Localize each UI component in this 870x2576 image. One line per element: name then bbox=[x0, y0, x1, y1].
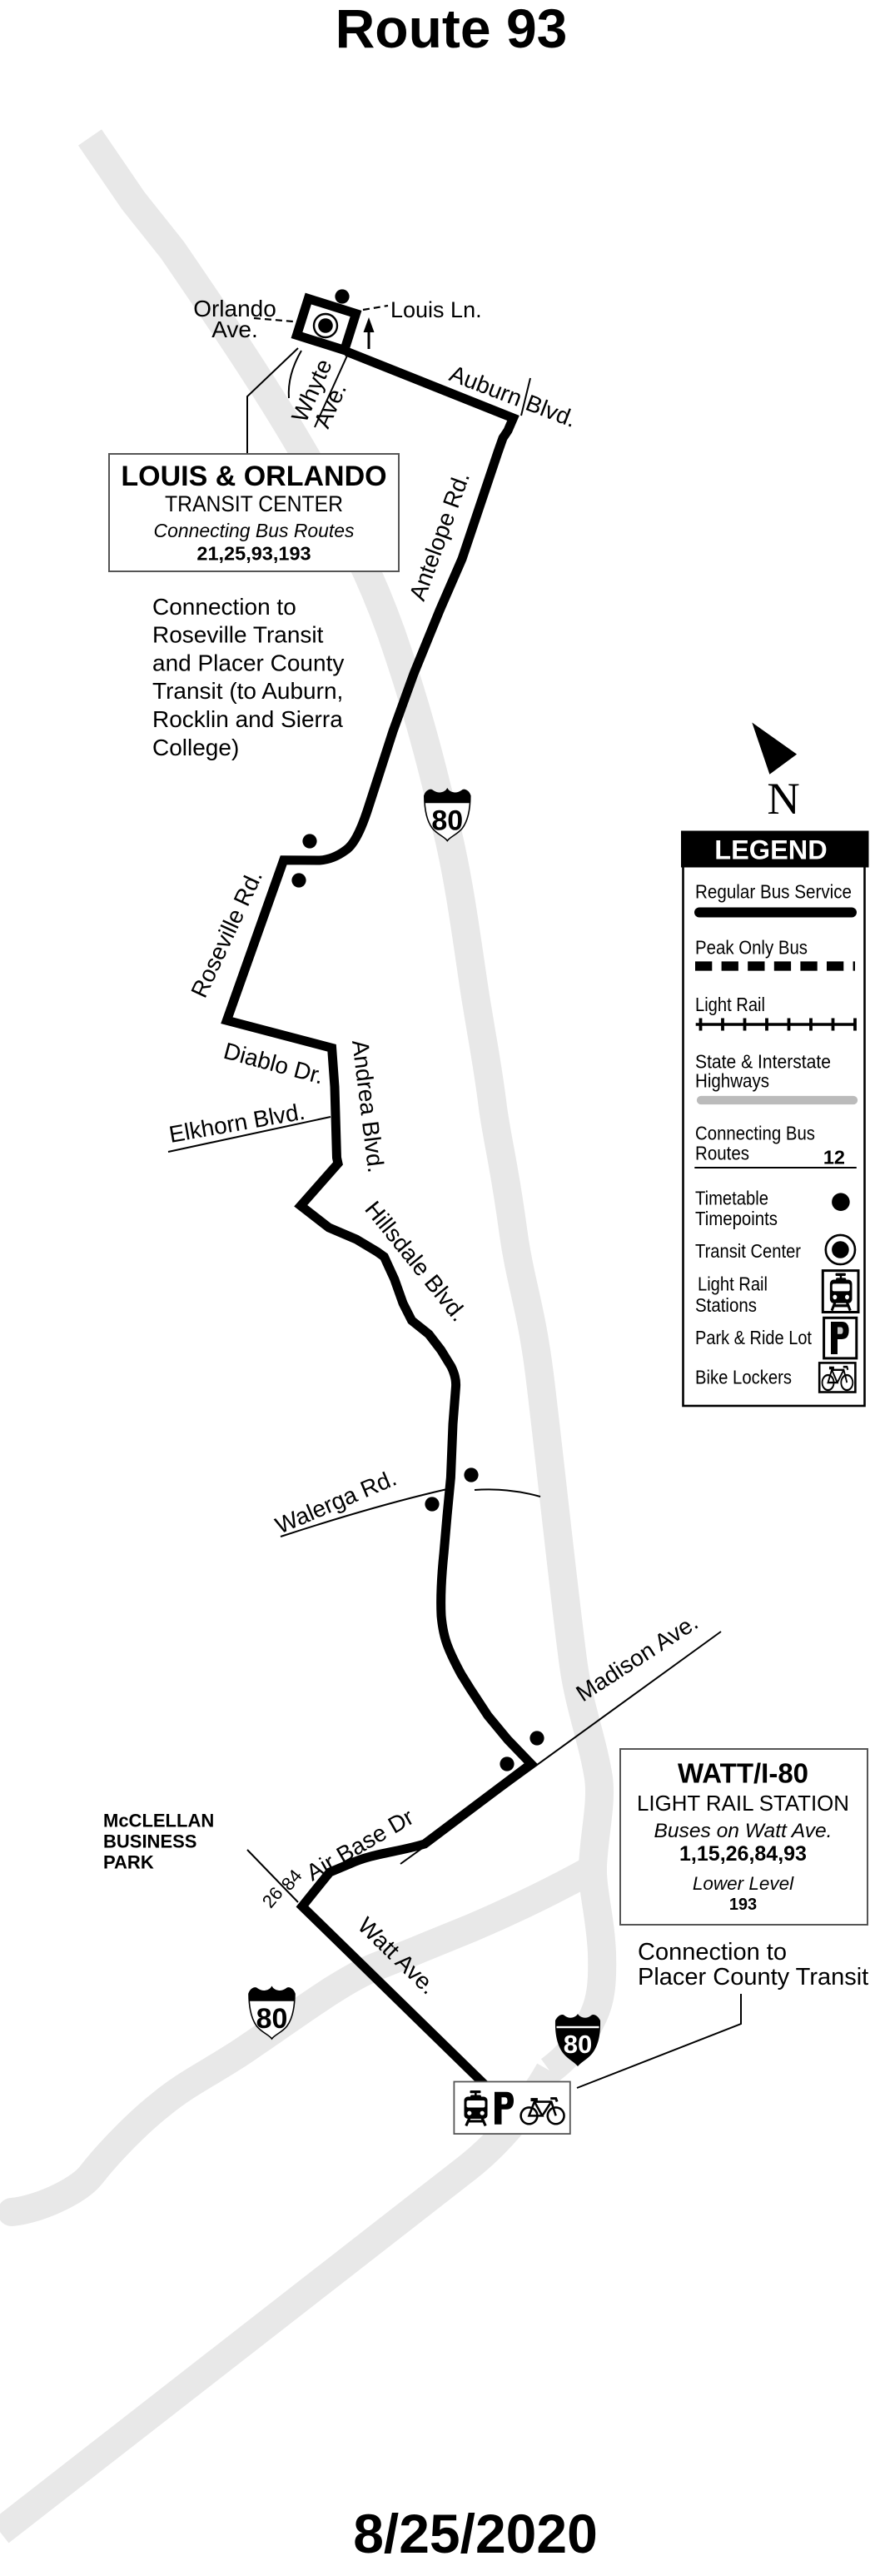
svg-text:Timepoints: Timepoints bbox=[695, 1208, 778, 1229]
svg-text:Connection to: Connection to bbox=[152, 594, 296, 620]
svg-text:WATT/I-80: WATT/I-80 bbox=[678, 1758, 808, 1789]
svg-text:193: 193 bbox=[729, 1896, 757, 1914]
svg-text:1,15,26,84,93: 1,15,26,84,93 bbox=[679, 1842, 807, 1866]
svg-text:Stations: Stations bbox=[695, 1294, 757, 1316]
svg-text:LOUIS & ORLANDO: LOUIS & ORLANDO bbox=[121, 461, 386, 492]
svg-text:Roseville Transit: Roseville Transit bbox=[152, 622, 324, 648]
svg-text:Routes: Routes bbox=[695, 1143, 749, 1164]
svg-text:McCLELLAN: McCLELLAN bbox=[103, 1811, 214, 1831]
svg-text:Louis Ln.: Louis Ln. bbox=[390, 297, 482, 322]
svg-text:Route 93: Route 93 bbox=[336, 0, 568, 59]
svg-text:Connecting Bus: Connecting Bus bbox=[695, 1122, 815, 1144]
svg-text:Regular Bus Service: Regular Bus Service bbox=[695, 881, 852, 903]
svg-text:Peak Only Bus: Peak Only Bus bbox=[695, 936, 808, 958]
svg-text:BUSINESS: BUSINESS bbox=[103, 1831, 196, 1852]
svg-text:Light Rail: Light Rail bbox=[695, 994, 765, 1015]
svg-text:21,25,93,193: 21,25,93,193 bbox=[196, 542, 311, 564]
svg-text:and Placer County: and Placer County bbox=[152, 650, 344, 675]
svg-text:Light Rail: Light Rail bbox=[698, 1273, 768, 1294]
svg-text:Ave.: Ave. bbox=[211, 316, 258, 342]
svg-text:Connection to: Connection to bbox=[638, 1939, 787, 1966]
svg-text:College): College) bbox=[152, 735, 239, 760]
svg-text:Bike Lockers: Bike Lockers bbox=[695, 1367, 792, 1388]
svg-text:Transit Center: Transit Center bbox=[695, 1240, 801, 1262]
svg-text:Placer County Transit: Placer County Transit bbox=[638, 1964, 868, 1991]
svg-text:Lower Level: Lower Level bbox=[693, 1873, 794, 1894]
svg-text:Timetable: Timetable bbox=[695, 1188, 768, 1209]
svg-text:N: N bbox=[767, 773, 799, 824]
svg-text:Rocklin and Sierra: Rocklin and Sierra bbox=[152, 706, 343, 732]
svg-text:LEGEND: LEGEND bbox=[714, 835, 827, 865]
svg-text:Park & Ride Lot: Park & Ride Lot bbox=[695, 1327, 812, 1348]
svg-text:12: 12 bbox=[823, 1146, 845, 1168]
svg-text:Highways: Highways bbox=[695, 1070, 769, 1092]
svg-text:PARK: PARK bbox=[103, 1851, 154, 1872]
svg-text:Buses on Watt Ave.: Buses on Watt Ave. bbox=[654, 1820, 833, 1842]
svg-text:Connecting Bus Routes: Connecting Bus Routes bbox=[154, 520, 355, 541]
svg-text:LIGHT RAIL STATION: LIGHT RAIL STATION bbox=[637, 1791, 849, 1816]
svg-text:TRANSIT CENTER: TRANSIT CENTER bbox=[165, 491, 343, 516]
svg-text:8/25/2020: 8/25/2020 bbox=[353, 2503, 598, 2564]
svg-text:Transit (to Auburn,: Transit (to Auburn, bbox=[152, 678, 343, 704]
